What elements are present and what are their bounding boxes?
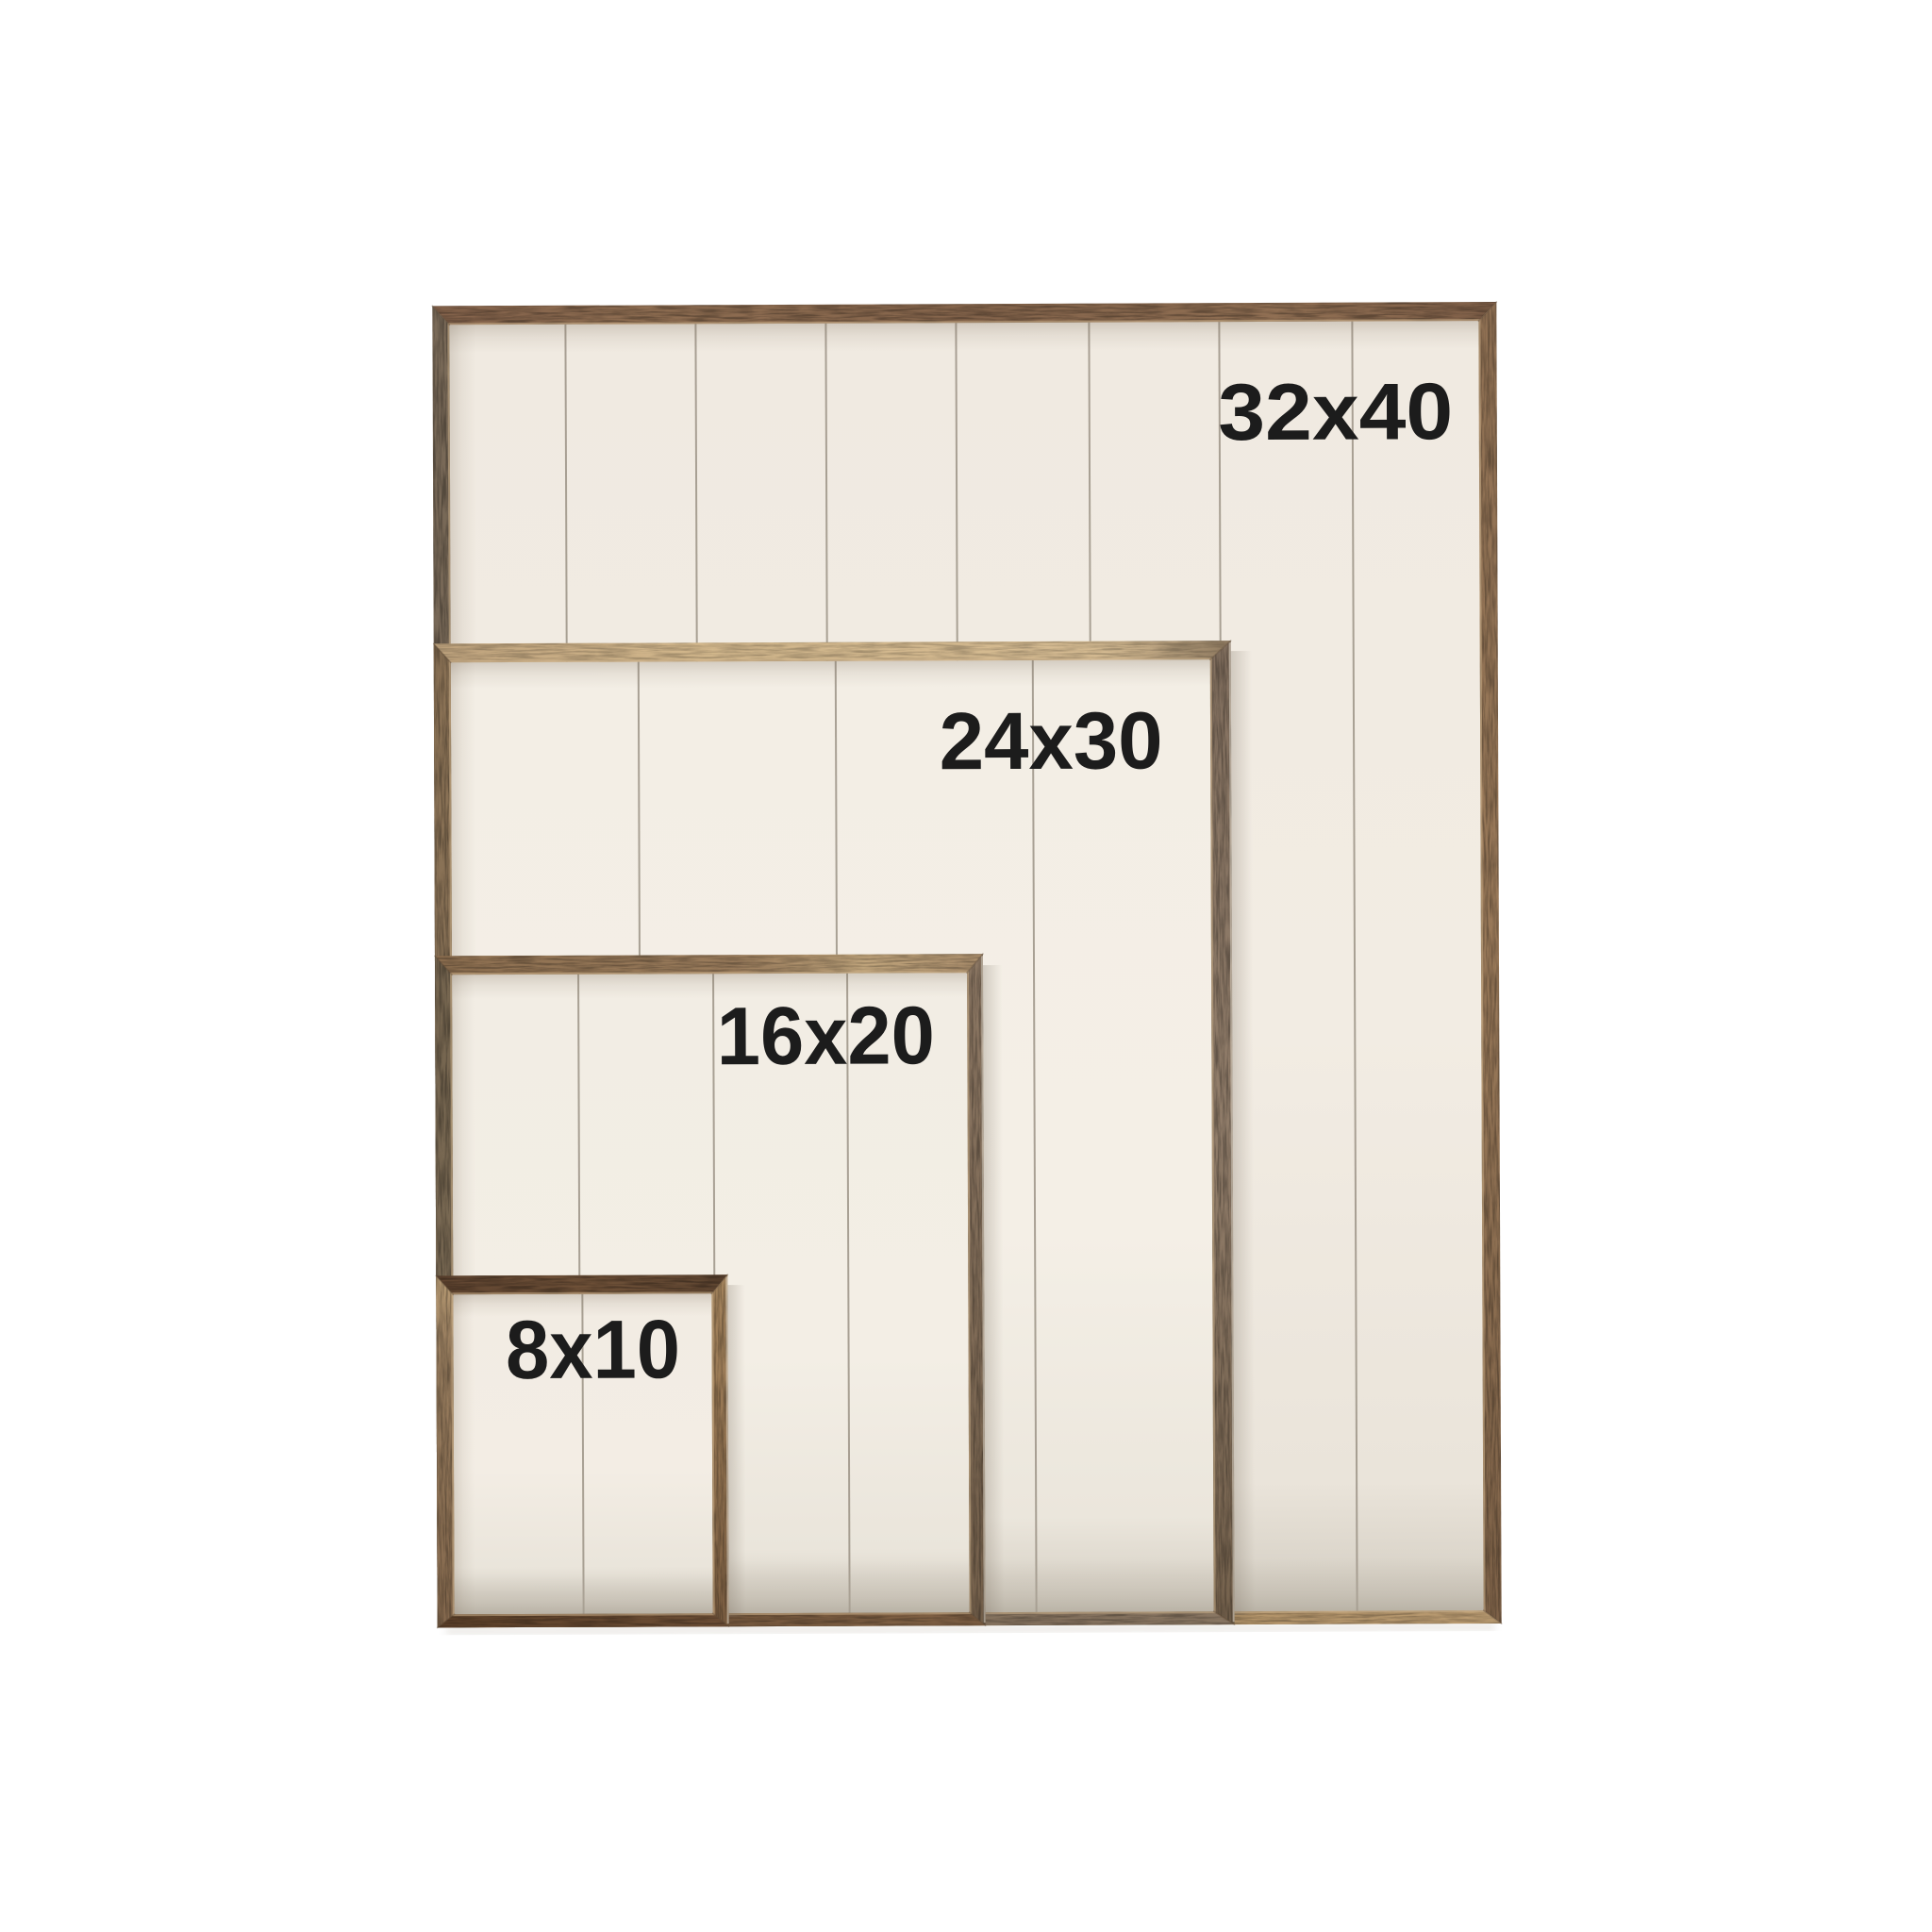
svg-text:16x20: 16x20: [717, 990, 935, 1082]
svg-text:32x40: 32x40: [1218, 367, 1453, 458]
svg-text:24x30: 24x30: [939, 695, 1162, 787]
svg-text:8x10: 8x10: [506, 1302, 680, 1396]
